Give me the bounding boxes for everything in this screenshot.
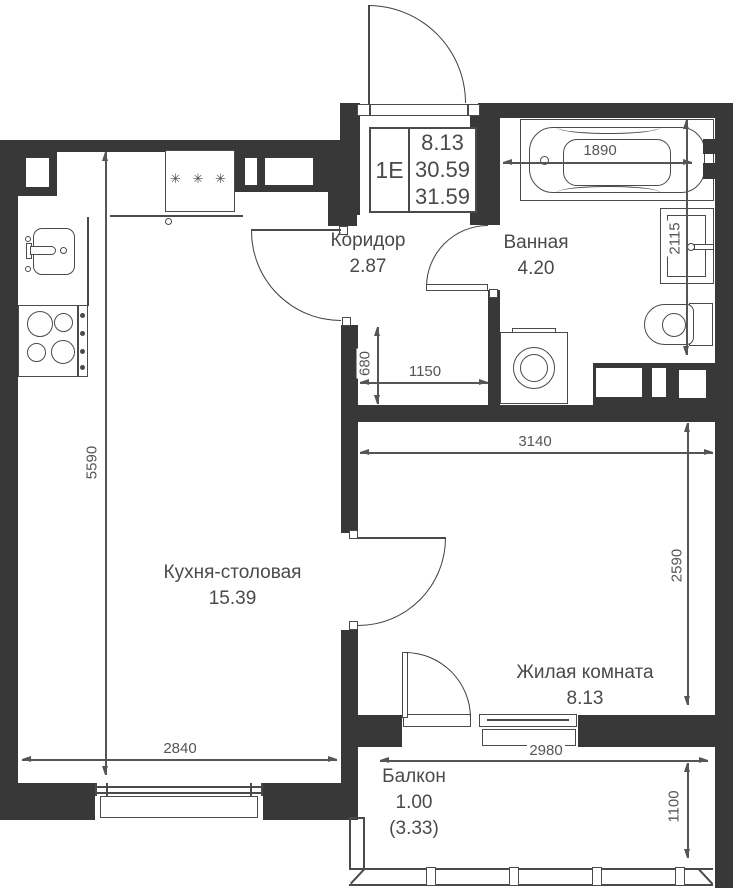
shaft-hole (245, 158, 257, 185)
balcony-mullion (592, 867, 602, 886)
door-jamb-cap (349, 530, 358, 539)
dim-arrow (328, 756, 337, 762)
shaft-hole (265, 158, 313, 185)
shaft-hole (652, 368, 666, 397)
room-label-bathroom: Ванная 4.20 (466, 230, 606, 282)
room-area: 8.13 (495, 686, 675, 712)
unit-area: 30.59 (415, 159, 470, 181)
shaft-hole (26, 158, 49, 187)
towel-rail-icon (703, 139, 715, 154)
dim-line-5590 (105, 152, 107, 775)
room-label-balcony: Балкон 1.00 (3.33) (368, 764, 460, 842)
bathroom-sink-faucet-head (687, 243, 695, 251)
balcony-left-edge (349, 817, 351, 870)
room-name: Кухня-столовая (140, 560, 325, 586)
wall-top-bathroom (478, 103, 733, 118)
floor-plan: ✳ ✳ ✳ 1Е 8.13 30.59 3 (0, 0, 733, 888)
entrance-frame-line (369, 104, 371, 116)
wall-kitchen-bottom-left (0, 783, 95, 820)
kitchen-window-cap (106, 783, 108, 796)
dim-arrow (503, 159, 512, 165)
dim-line-3140 (360, 452, 713, 454)
door-jamb-cap (342, 317, 351, 326)
entrance-frame-line (467, 104, 469, 116)
dim-text-1150: 1150 (395, 364, 455, 379)
kitchen-window-glass-line (95, 792, 263, 794)
kitchen-sink-drain (60, 247, 67, 254)
room-area: 15.39 (140, 586, 325, 612)
dim-text-3140: 3140 (505, 434, 565, 449)
dim-arrow (360, 449, 369, 455)
room-label-living: Жилая комната 8.13 (495, 660, 675, 712)
washing-machine-top (512, 328, 556, 333)
door-jamb-cap (489, 289, 498, 298)
kitchen-window-sill (100, 796, 258, 818)
stove-knob (80, 349, 85, 354)
wall-mid-band (358, 405, 733, 422)
dim-line-1100 (687, 763, 689, 858)
wall-niche (341, 325, 358, 533)
balcony-glazing-bottom (349, 884, 713, 886)
dim-text-1100: 1100 (667, 777, 682, 837)
stove-knob (80, 331, 85, 336)
stove-burner (27, 311, 53, 337)
living-window-frame (479, 714, 577, 727)
entrance-door-frame (357, 104, 480, 116)
dim-arrow (683, 346, 689, 355)
toilet-bowl-inner (662, 313, 686, 337)
washing-machine-drum-inner (520, 354, 548, 382)
dim-line-2980 (380, 760, 708, 762)
room-area: 2.87 (298, 254, 438, 280)
unit-type: 1Е (371, 129, 410, 211)
dim-line-2590 (687, 423, 689, 705)
entrance-door-arc (368, 5, 466, 103)
wall-entry-jamb-left (340, 103, 360, 215)
kitchen-sink-screw (25, 236, 31, 242)
shaft-hole (596, 368, 642, 397)
kitchen-window-cap (95, 783, 97, 796)
wall-living-bottom-left (341, 715, 402, 747)
dim-arrow (684, 849, 690, 858)
dim-line-1890 (503, 162, 692, 164)
dim-arrow (684, 763, 690, 772)
living-door-arc (358, 538, 446, 626)
room-label-corridor: Коридор 2.87 (298, 228, 438, 280)
dim-arrow (360, 379, 369, 385)
dim-text-2980: 2980 (513, 743, 579, 758)
stove-burner (27, 343, 46, 362)
stove-knob (80, 313, 85, 318)
dim-line-2840 (22, 759, 337, 761)
room-name: Коридор (298, 228, 438, 254)
balcony-door-arc (405, 652, 471, 718)
fridge-stars: ✳ ✳ ✳ (165, 150, 235, 208)
dim-line-1150 (360, 382, 488, 384)
counter-edge-line (87, 217, 89, 306)
dim-arrow (699, 757, 708, 763)
kitchen-window-cap (250, 783, 252, 796)
wall-left (0, 140, 18, 820)
stove-divider (77, 305, 79, 377)
room-area: 4.20 (466, 256, 606, 282)
dim-arrow (684, 423, 690, 432)
balcony-mullion (509, 867, 519, 886)
room-name: Балкон (368, 764, 460, 790)
balcony-left-edge (363, 817, 365, 870)
room-name: Ванная (466, 230, 606, 256)
stove-knob (80, 365, 85, 370)
balcony-corner-brace (350, 868, 365, 884)
dim-line-2115 (686, 120, 688, 355)
wall-living-bottom-right (577, 715, 715, 747)
dim-arrow (102, 152, 108, 161)
dim-arrow (380, 757, 389, 763)
dim-arrow (374, 327, 380, 336)
title-block: 1Е 8.13 30.59 31.59 (369, 127, 477, 213)
room-label-kitchen: Кухня-столовая 15.39 (140, 560, 325, 612)
room-area: 1.00 (368, 790, 460, 816)
living-window-glass-line (487, 719, 569, 721)
bathtub-wave (556, 186, 661, 200)
dim-arrow (683, 159, 692, 165)
counter-edge-line (110, 215, 243, 217)
counter-knob (165, 218, 172, 225)
bathroom-sink-faucet (694, 244, 714, 250)
bathtub-wave (556, 120, 661, 134)
room-area-total: (3.33) (368, 816, 460, 842)
door-jamb-cap (349, 621, 358, 630)
dim-arrow (102, 766, 108, 775)
dim-arrow (22, 756, 31, 762)
dim-text-5590: 5590 (85, 433, 100, 493)
dim-arrow (704, 449, 713, 455)
towel-rail-icon (703, 163, 715, 179)
unit-total-area: 31.59 (415, 186, 470, 208)
dim-arrow (683, 120, 689, 129)
wall-right (715, 103, 733, 888)
shaft-hole (679, 370, 706, 398)
bathroom-door-leaf (426, 284, 488, 291)
stove-burner (54, 313, 73, 332)
dim-arrow (684, 696, 690, 705)
kitchen-window-glass-line (95, 786, 263, 788)
dim-arrow (479, 379, 488, 385)
kitchen-sink-faucet-spout (30, 246, 56, 255)
dim-arrow (374, 395, 380, 404)
bathtub-drain (540, 156, 549, 165)
dim-text-2840: 2840 (150, 741, 210, 756)
dim-text-2115: 2115 (668, 209, 683, 269)
unit-living-area: 8.13 (421, 132, 464, 154)
balcony-mullion (426, 867, 436, 886)
kitchen-sink-screw (25, 266, 31, 272)
balcony-corner-brace (698, 868, 713, 884)
dim-text-2590: 2590 (670, 536, 685, 596)
balcony-mullion (675, 867, 685, 886)
balcony-glazing-top (349, 868, 713, 870)
dim-line-680 (377, 327, 379, 404)
dim-text-1890: 1890 (567, 143, 633, 158)
room-name: Жилая комната (495, 660, 675, 686)
stove-burner (51, 340, 75, 364)
wall-living-stub (341, 630, 358, 715)
wall-bathroom-left (488, 290, 500, 410)
wall-kitchen-bottom-right (263, 783, 345, 820)
kitchen-window-cap (261, 783, 263, 796)
